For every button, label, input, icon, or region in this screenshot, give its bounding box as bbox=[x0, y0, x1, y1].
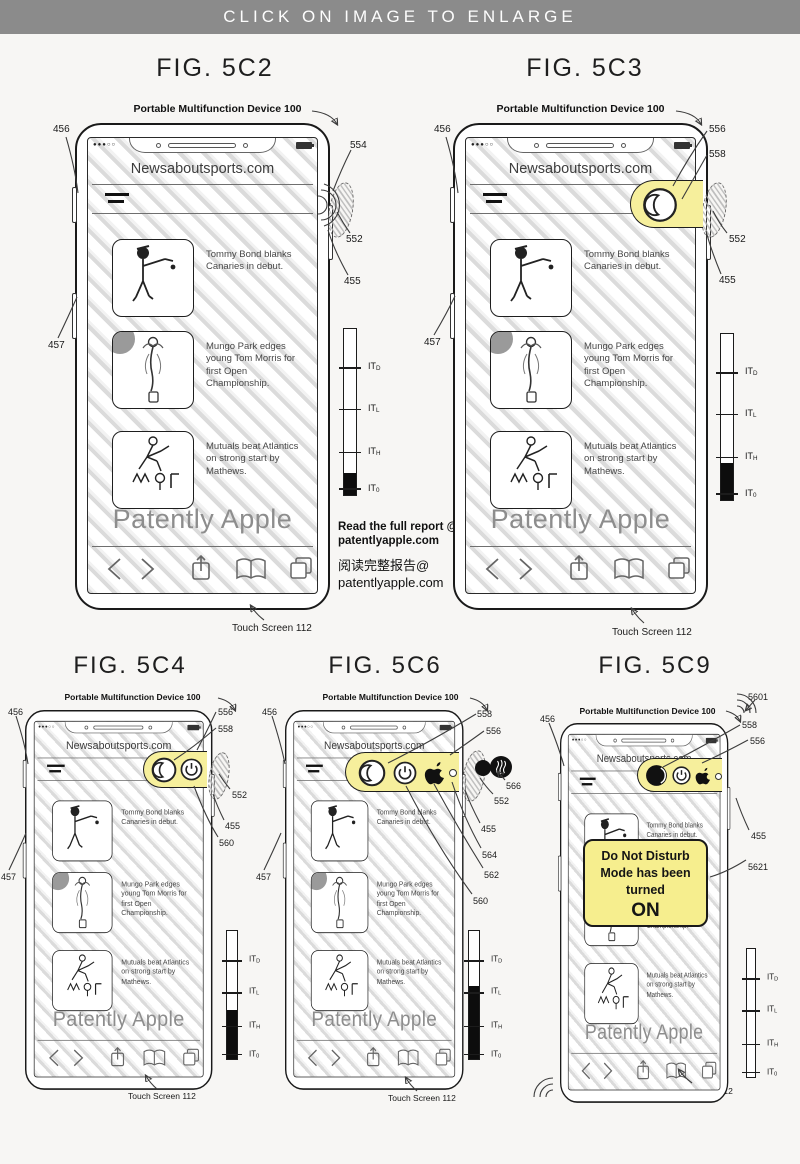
news-thumb-batsman bbox=[112, 239, 194, 317]
signal-strength-icon: ●●●○○ bbox=[298, 725, 314, 730]
earpiece-notch bbox=[65, 722, 173, 734]
scale-label: ITL bbox=[767, 1005, 777, 1015]
tick bbox=[222, 1054, 242, 1056]
intensity-bar bbox=[226, 930, 238, 1060]
patent-figure-sheet[interactable]: CLICK ON IMAGE TO ENLARGE FIG. 5C2 Porta… bbox=[0, 0, 800, 1164]
device-label: Portable Multifunction Device 100 bbox=[550, 706, 745, 716]
browser-toolbar bbox=[88, 550, 317, 590]
callout-558: 558 bbox=[709, 149, 726, 160]
status-dot bbox=[715, 773, 722, 780]
callout-455: 455 bbox=[751, 831, 766, 841]
intensity-bar bbox=[468, 930, 480, 1060]
batsman-figure-icon bbox=[312, 801, 367, 859]
tick bbox=[339, 409, 361, 411]
tick bbox=[716, 372, 738, 374]
callout-456: 456 bbox=[262, 707, 277, 717]
news-thumb-batsman bbox=[52, 800, 112, 861]
tabs-icon bbox=[666, 554, 692, 582]
news-thumb-golfer bbox=[112, 331, 194, 409]
tick bbox=[222, 1026, 242, 1028]
moon-button-active bbox=[645, 764, 668, 787]
watermark: Patently Apple bbox=[466, 504, 695, 535]
news-thumb-golfer bbox=[311, 872, 368, 933]
dnd-line: turned bbox=[585, 882, 706, 899]
tabs-icon bbox=[182, 1046, 201, 1068]
divider bbox=[297, 1040, 452, 1041]
scale-label: ITH bbox=[767, 1039, 778, 1049]
touch-screen-label: Touch Screen 112 bbox=[232, 623, 312, 634]
divider bbox=[571, 793, 717, 794]
camera-icon bbox=[156, 143, 161, 148]
tick bbox=[464, 960, 484, 962]
back-icon bbox=[46, 1048, 62, 1068]
side-button-left-lower bbox=[283, 843, 287, 879]
device-label: Portable Multifunction Device 100 bbox=[100, 103, 335, 115]
callout-5621: 5621 bbox=[748, 862, 768, 872]
news-text: Mutuals beat Atlantics on strong start b… bbox=[121, 958, 196, 987]
share-icon bbox=[188, 553, 214, 583]
batsman-figure-icon bbox=[491, 240, 569, 314]
dnd-toast: Do Not Disturb Mode has been turned ON bbox=[583, 839, 708, 927]
side-button-left-upper bbox=[450, 187, 455, 223]
dnd-on: ON bbox=[585, 900, 706, 922]
dnd-slide-panel bbox=[345, 752, 459, 792]
news-thumb-batsman bbox=[311, 800, 368, 861]
back-icon bbox=[305, 1048, 320, 1068]
callout-558: 558 bbox=[218, 724, 233, 734]
scale-label: ITL bbox=[368, 403, 380, 414]
signal-strength-icon: ●●●○○ bbox=[572, 738, 587, 743]
tick bbox=[742, 1072, 760, 1074]
callout-455: 455 bbox=[719, 275, 736, 286]
side-button-left-lower bbox=[23, 843, 27, 879]
batsman-figure-icon bbox=[53, 801, 110, 859]
battery-icon bbox=[674, 142, 690, 149]
callout-455: 455 bbox=[481, 824, 496, 834]
callout-560: 560 bbox=[219, 838, 234, 848]
scale-label: ITL bbox=[249, 987, 259, 997]
share-icon bbox=[108, 1045, 127, 1068]
sensor-icon bbox=[403, 725, 407, 729]
intensity-bar bbox=[720, 333, 734, 501]
callout-560: 560 bbox=[473, 896, 488, 906]
callout-552: 552 bbox=[346, 234, 363, 245]
browser-toolbar bbox=[35, 1043, 203, 1074]
sensor-icon bbox=[621, 143, 626, 148]
news-text: Mungo Park edges young Tom Morris for fi… bbox=[584, 341, 686, 390]
callout-456: 456 bbox=[8, 707, 23, 717]
watermark: Patently Apple bbox=[35, 1007, 203, 1031]
camera-icon bbox=[85, 725, 89, 729]
side-button-left-lower bbox=[450, 293, 455, 339]
tick bbox=[716, 457, 738, 459]
share-icon bbox=[566, 553, 592, 583]
scale-label: ITD bbox=[767, 972, 778, 982]
power-button bbox=[393, 761, 417, 785]
share-icon bbox=[364, 1045, 382, 1068]
news-text: Mutuals beat Atlantics on strong start b… bbox=[377, 958, 448, 987]
battery-icon bbox=[440, 724, 451, 729]
news-text: Mungo Park edges young Tom Morris for fi… bbox=[377, 880, 448, 919]
phone-5c2: ●●●○○ Newsaboutsports.com Tommy Bond bla… bbox=[75, 123, 330, 610]
tick bbox=[742, 1044, 760, 1046]
signal-strength-icon: ●●●○○ bbox=[93, 142, 116, 148]
browser-toolbar bbox=[466, 550, 695, 590]
callout-552: 552 bbox=[494, 796, 509, 806]
scale-label: ITD bbox=[491, 954, 502, 964]
bookmarks-icon bbox=[665, 1061, 687, 1081]
batsman-figure-icon bbox=[113, 240, 191, 314]
callout-558: 558 bbox=[742, 720, 757, 730]
tick bbox=[339, 367, 361, 369]
home-indicator bbox=[332, 1077, 417, 1078]
callout-562: 562 bbox=[484, 870, 499, 880]
device-label: Portable Multifunction Device 100 bbox=[463, 103, 698, 115]
status-dot bbox=[449, 769, 457, 777]
news-thumb-golfer bbox=[490, 331, 572, 409]
divider bbox=[92, 184, 313, 185]
side-button-left-upper bbox=[23, 760, 27, 788]
site-title: Newsaboutsports.com bbox=[466, 161, 695, 177]
callout-552: 552 bbox=[729, 234, 746, 245]
speaker-slot-icon bbox=[168, 143, 236, 148]
device-label: Portable Multifunction Device 100 bbox=[35, 692, 230, 702]
moon-button bbox=[358, 759, 386, 787]
tick bbox=[339, 452, 361, 454]
callout-456: 456 bbox=[53, 124, 70, 135]
callout-556: 556 bbox=[709, 124, 726, 135]
scale-label: IT0 bbox=[249, 1049, 259, 1059]
callout-456: 456 bbox=[540, 714, 555, 724]
sensor-icon bbox=[671, 738, 674, 742]
news-text: Tommy Bond blanks Canaries in debut. bbox=[584, 249, 686, 274]
scale-label: IT0 bbox=[745, 488, 757, 499]
tick bbox=[464, 1026, 484, 1028]
callout-457: 457 bbox=[1, 872, 16, 882]
figure-title-5c2: FIG. 5C2 bbox=[115, 54, 315, 83]
callout-556: 556 bbox=[750, 736, 765, 746]
scale-label: IT0 bbox=[767, 1067, 777, 1077]
intensity-fill bbox=[227, 1010, 237, 1059]
home-indicator bbox=[142, 593, 264, 594]
tick bbox=[716, 493, 738, 495]
side-button-left-lower bbox=[558, 856, 561, 892]
back-icon bbox=[104, 556, 126, 582]
figure-title-5c4: FIG. 5C4 bbox=[30, 652, 230, 680]
scale-label: IT0 bbox=[368, 483, 380, 494]
cricket-figure-icon bbox=[53, 951, 110, 1009]
sound-on-icon-large bbox=[489, 755, 513, 779]
speaker-slot-icon bbox=[622, 738, 667, 742]
news-text: Tommy Bond blanks Canaries in debut. bbox=[377, 808, 448, 827]
forward-icon bbox=[600, 1061, 615, 1081]
callout-457: 457 bbox=[424, 337, 441, 348]
news-text: Mungo Park edges young Tom Morris for fi… bbox=[121, 880, 196, 919]
home-indicator bbox=[520, 593, 642, 594]
scale-label: ITH bbox=[368, 446, 381, 457]
callout-556: 556 bbox=[486, 726, 501, 736]
site-title: Newsaboutsports.com bbox=[294, 740, 454, 752]
tick bbox=[222, 960, 242, 962]
moon-button bbox=[642, 187, 678, 223]
news-thumb-batsman bbox=[490, 239, 572, 317]
divider bbox=[571, 1053, 717, 1054]
callout-556: 556 bbox=[218, 707, 233, 717]
forward-icon bbox=[514, 556, 536, 582]
news-thumb-cricket bbox=[52, 950, 112, 1011]
divider bbox=[37, 1040, 199, 1041]
tick bbox=[464, 992, 484, 994]
news-text: Tommy Bond blanks Canaries in debut. bbox=[121, 808, 196, 827]
side-button-left-upper bbox=[283, 760, 287, 788]
intensity-bar bbox=[746, 948, 756, 1078]
touch-screen: ●●●○○ Newsaboutsports.com Tommy Bond bla… bbox=[87, 137, 318, 594]
news-thumb-golfer bbox=[52, 872, 112, 933]
dnd-line: Mode has been bbox=[585, 865, 706, 882]
tick bbox=[222, 992, 242, 994]
cricket-figure-icon bbox=[113, 432, 191, 506]
news-text: Mutuals beat Atlantics on strong start b… bbox=[646, 971, 713, 1000]
signal-strength-icon: ●●●○○ bbox=[38, 725, 55, 730]
site-title: Newsaboutsports.com bbox=[88, 161, 317, 177]
callout-5601: 5601 bbox=[748, 692, 768, 702]
tabs-icon bbox=[701, 1059, 718, 1081]
callout-456: 456 bbox=[434, 124, 451, 135]
battery-icon bbox=[187, 724, 199, 729]
watermark: Patently Apple bbox=[569, 1020, 720, 1044]
scale-label: ITL bbox=[745, 408, 757, 419]
news-text: Mungo Park edges young Tom Morris for fi… bbox=[206, 341, 308, 390]
touch-screen-label: Touch Screen 112 bbox=[612, 627, 692, 638]
earpiece-notch bbox=[596, 735, 693, 747]
cricket-figure-icon bbox=[585, 964, 636, 1022]
cricket-figure-icon bbox=[491, 432, 569, 506]
back-icon bbox=[579, 1061, 594, 1081]
power-button bbox=[672, 766, 691, 785]
callout-457: 457 bbox=[48, 340, 65, 351]
dnd-line: Do Not Disturb bbox=[585, 848, 706, 865]
intensity-bar bbox=[343, 328, 357, 496]
apple-logo-button bbox=[424, 760, 448, 786]
side-button-left-lower bbox=[72, 293, 77, 339]
scale-label: ITH bbox=[249, 1021, 260, 1031]
scale-label: ITH bbox=[491, 1021, 502, 1031]
earpiece-notch bbox=[507, 138, 654, 153]
tabs-icon bbox=[288, 554, 314, 582]
figure-title-5c3: FIG. 5C3 bbox=[485, 54, 685, 83]
earpiece-notch bbox=[129, 138, 276, 153]
moon-button bbox=[151, 757, 177, 783]
news-thumb-cricket bbox=[112, 431, 194, 509]
intensity-fill bbox=[469, 986, 479, 1059]
sensor-icon bbox=[149, 725, 153, 729]
intensity-fill bbox=[344, 473, 356, 495]
news-text: Tommy Bond blanks Canaries in debut. bbox=[206, 249, 308, 274]
scale-label: ITD bbox=[249, 954, 260, 964]
bookmarks-icon bbox=[396, 1048, 420, 1068]
signal-strength-icon: ●●●○○ bbox=[471, 142, 494, 148]
browser-toolbar bbox=[569, 1056, 720, 1087]
apple-logo-button bbox=[695, 766, 713, 786]
device-label: Portable Multifunction Device 100 bbox=[293, 692, 488, 702]
scale-label: ITD bbox=[745, 366, 758, 377]
back-icon bbox=[482, 556, 504, 582]
bookmarks-icon bbox=[612, 556, 646, 582]
camera-icon bbox=[534, 143, 539, 148]
dnd-slide-panel bbox=[637, 758, 722, 792]
forward-icon bbox=[70, 1048, 86, 1068]
tick bbox=[339, 488, 361, 490]
callout-455: 455 bbox=[344, 276, 361, 287]
home-indicator bbox=[604, 1090, 685, 1091]
tick bbox=[464, 1054, 484, 1056]
speaker-slot-icon bbox=[350, 725, 398, 729]
tick bbox=[716, 414, 738, 416]
speaker-slot-icon bbox=[546, 143, 614, 148]
watermark: Patently Apple bbox=[88, 504, 317, 535]
tick bbox=[742, 1010, 760, 1012]
news-text: Mutuals beat Atlantics on strong start b… bbox=[206, 441, 308, 478]
figure-title-5c6: FIG. 5C6 bbox=[285, 652, 485, 680]
divider bbox=[92, 213, 313, 214]
forward-icon bbox=[136, 556, 158, 582]
power-button bbox=[180, 758, 203, 781]
news-text: Tommy Bond blanks Canaries in debut. bbox=[646, 821, 713, 840]
divider bbox=[470, 546, 691, 547]
dnd-slide-panel bbox=[143, 751, 207, 788]
watermark: Patently Apple bbox=[294, 1007, 454, 1031]
tabs-icon bbox=[434, 1046, 452, 1068]
side-button-left-upper bbox=[558, 773, 561, 801]
forward-icon bbox=[328, 1048, 343, 1068]
side-button-left-upper bbox=[72, 187, 77, 223]
side-button-right bbox=[727, 787, 730, 830]
browser-toolbar bbox=[294, 1043, 454, 1074]
callout-457: 457 bbox=[256, 872, 271, 882]
cricket-figure-icon bbox=[312, 951, 367, 1009]
battery-icon bbox=[706, 737, 717, 742]
news-text: Mutuals beat Atlantics on strong start b… bbox=[584, 441, 686, 478]
news-thumb-cricket bbox=[490, 431, 572, 509]
callout-552: 552 bbox=[232, 790, 247, 800]
figure-title-5c9: FIG. 5C9 bbox=[555, 652, 755, 680]
news-thumb-cricket bbox=[311, 950, 368, 1011]
scale-label: IT0 bbox=[491, 1049, 501, 1059]
share-icon bbox=[635, 1058, 652, 1081]
bookmarks-icon bbox=[142, 1048, 167, 1068]
scale-label: ITH bbox=[745, 451, 758, 462]
callout-566: 566 bbox=[506, 781, 521, 791]
scale-label: ITD bbox=[368, 361, 381, 372]
camera-icon bbox=[614, 738, 617, 742]
dnd-slide-panel bbox=[630, 180, 703, 228]
speaker-slot-icon bbox=[94, 725, 144, 729]
earpiece-notch bbox=[323, 722, 426, 734]
enlarge-banner: CLICK ON IMAGE TO ENLARGE bbox=[0, 0, 800, 34]
touch-screen-label: Touch Screen 112 bbox=[128, 1091, 196, 1101]
divider bbox=[92, 546, 313, 547]
scale-label: ITL bbox=[491, 987, 501, 997]
callout-564: 564 bbox=[482, 850, 497, 860]
tick bbox=[742, 978, 760, 980]
news-thumb-cricket bbox=[584, 963, 638, 1024]
callout-554: 554 bbox=[350, 140, 367, 151]
bookmarks-icon bbox=[234, 556, 268, 582]
touch-screen-label: Touch Screen 112 bbox=[388, 1093, 456, 1103]
callout-558: 558 bbox=[477, 709, 492, 719]
battery-icon bbox=[296, 142, 312, 149]
camera-icon bbox=[342, 725, 346, 729]
home-indicator bbox=[74, 1077, 164, 1078]
callout-455: 455 bbox=[225, 821, 240, 831]
sensor-icon bbox=[243, 143, 248, 148]
